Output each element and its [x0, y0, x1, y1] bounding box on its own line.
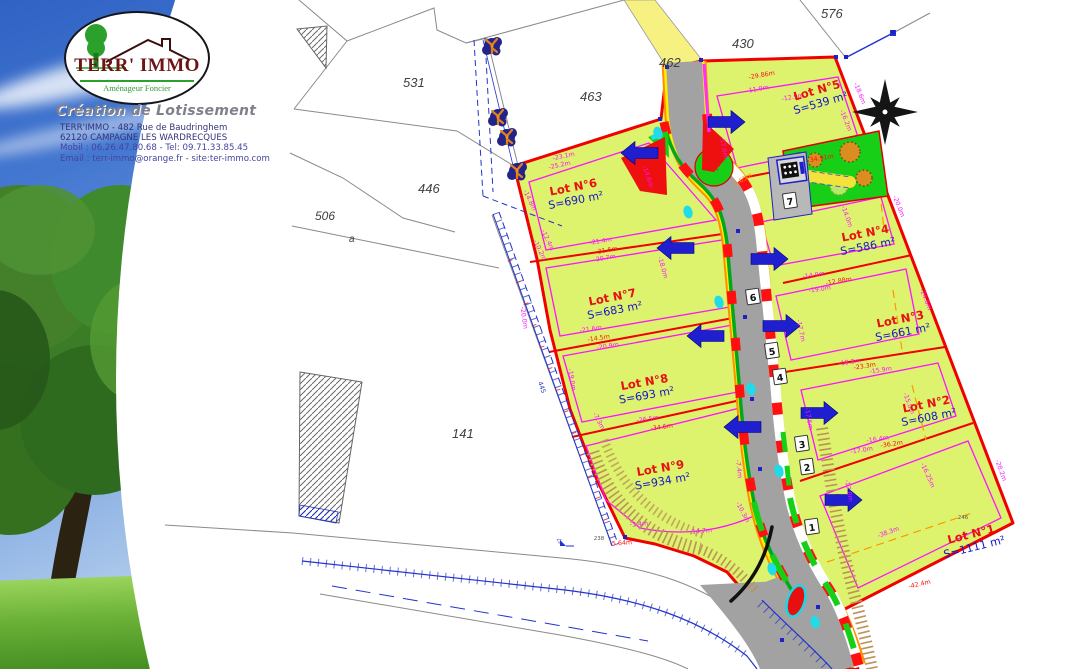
- parcel-number: 531: [403, 75, 425, 90]
- road-marker: 4: [772, 368, 787, 385]
- survey-node: [743, 315, 747, 319]
- parcel-number: a: [349, 234, 355, 245]
- company-subtitle: Aménageur Foncier: [66, 83, 208, 93]
- address-phones: Mobil : 06.26.47.80.68 - Tel: 09.71.33.8…: [60, 143, 270, 153]
- parcel-number: 446: [418, 181, 440, 196]
- company-name: TERR' IMMO: [66, 55, 208, 77]
- road-marker: 7: [782, 192, 797, 209]
- dimension-label: -18.6m: [852, 82, 867, 105]
- existing-buildings: [297, 26, 362, 523]
- road-marker: 2: [799, 458, 814, 475]
- survey-node: [658, 117, 662, 121]
- dimension-label: -3.4m: [629, 520, 648, 528]
- dimension-label: 238: [594, 536, 605, 542]
- parcel-number: 430: [732, 36, 754, 51]
- logo-divider: [80, 80, 194, 82]
- boundary-tree: [488, 108, 508, 127]
- refuse-bay: [768, 152, 812, 220]
- survey-node: [780, 638, 784, 642]
- parcel-number: 141: [452, 426, 474, 441]
- boundary-tree: [497, 128, 517, 147]
- survey-node: [750, 397, 754, 401]
- company-logo: TERR' IMMO Aménageur Foncier: [64, 11, 210, 105]
- parcel-number: 462: [659, 55, 681, 70]
- survey-node: [834, 55, 838, 59]
- parcel-number: 463: [580, 89, 602, 104]
- dimension-label: 445: [536, 381, 547, 395]
- dimension-label: ▽: [557, 538, 562, 545]
- address-email: Email : terr-immo@orange.fr - site:ter-i…: [60, 154, 270, 164]
- address-city: 62120 CAMPAGNE LES WARDRECQUES: [60, 133, 270, 143]
- survey-node: [816, 605, 820, 609]
- survey-node: [844, 55, 848, 59]
- dimension-label: -42.4m: [908, 579, 931, 591]
- address-street: TERR'IMMO - 482 Rue de Baudringhem: [60, 123, 270, 133]
- boundary-tree: [482, 37, 502, 56]
- dimension-label: 246: [958, 515, 969, 521]
- survey-node: [758, 467, 762, 471]
- road-marker: 3: [794, 435, 809, 452]
- site-plan-page: 7654321 -29.86m-11.9m-16.2m-17.0m-12.9m-…: [0, 0, 1080, 669]
- tagline: Création de Lotissement: [56, 103, 256, 119]
- road-marker: 1: [804, 518, 819, 535]
- company-address: TERR'IMMO - 482 Rue de Baudringhem 62120…: [60, 123, 270, 164]
- dimension-label: -5.64m: [609, 539, 632, 548]
- survey-node: [623, 535, 627, 539]
- parcel-number: 506: [315, 209, 335, 223]
- boundary-tree: [507, 162, 527, 181]
- parcel-number: 576: [821, 6, 843, 21]
- survey-node: [736, 229, 740, 233]
- survey-node: [699, 58, 703, 62]
- bin-icon: [777, 157, 807, 185]
- survey-node: [891, 30, 895, 34]
- road-marker: 6: [745, 288, 760, 305]
- road-marker: 5: [764, 342, 779, 359]
